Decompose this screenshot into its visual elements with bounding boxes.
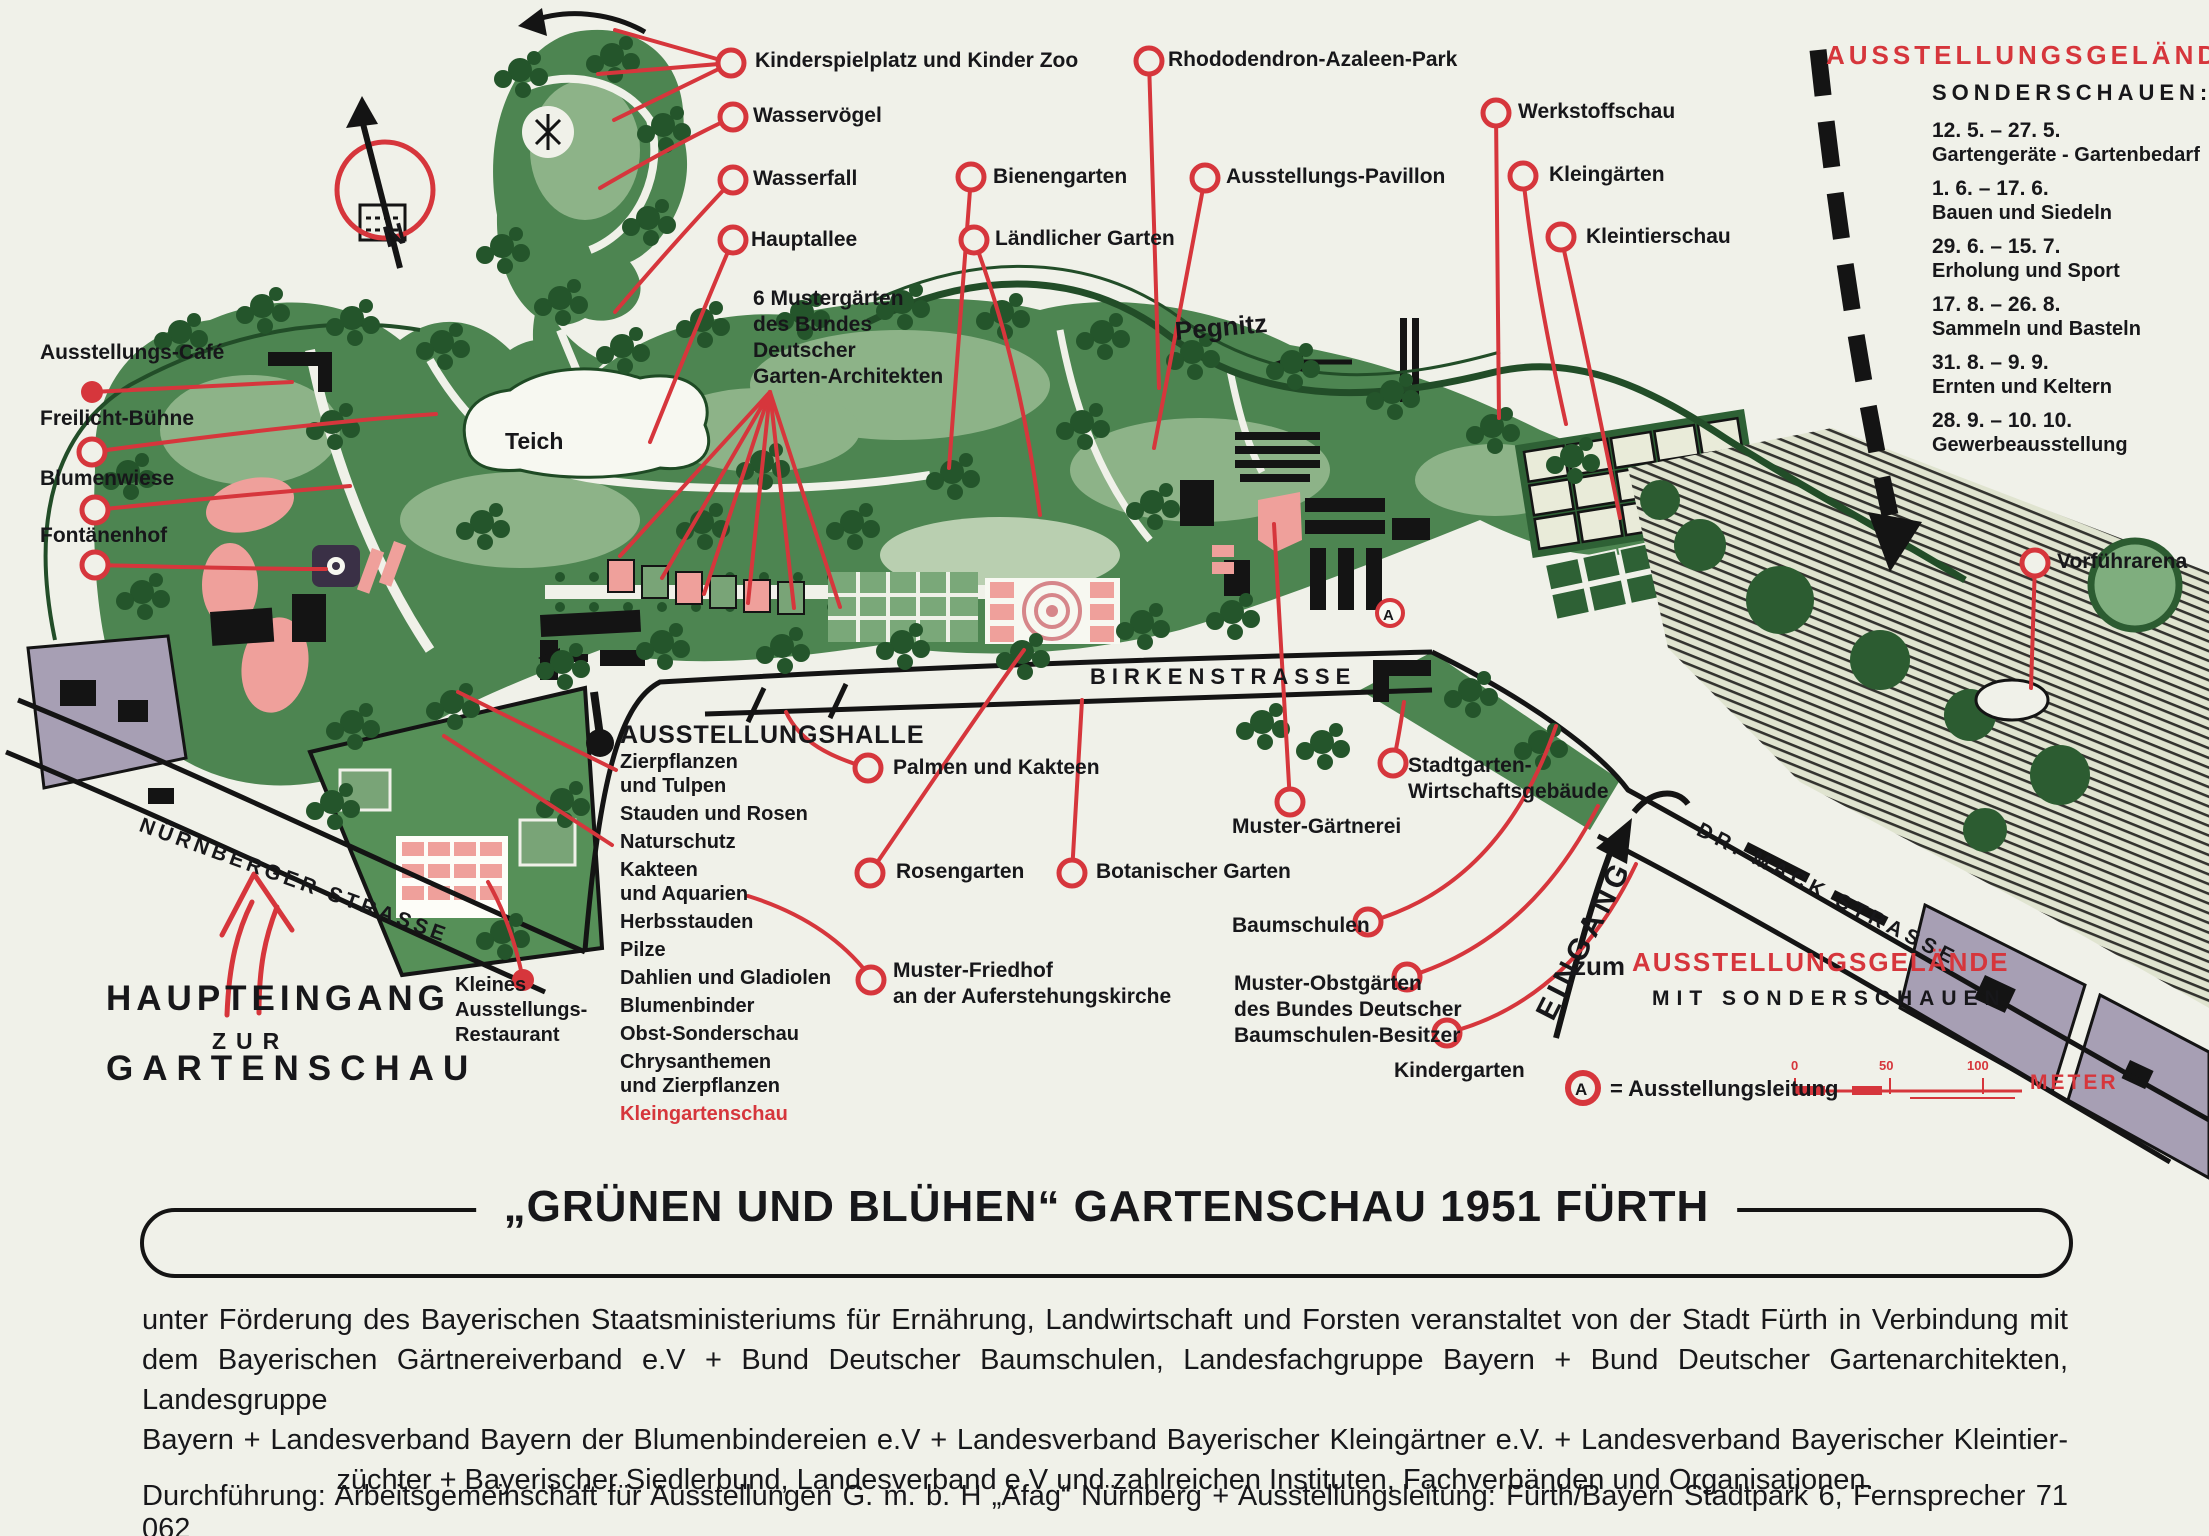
special-grounds-title: AUSSTELLUNGSGELÄNDE — [1826, 42, 2209, 68]
paragraph-line: dem Bayerischen Gärtnereiverband e.V + B… — [142, 1340, 2068, 1420]
label-fontaenenhof: Fontänenhof — [40, 523, 167, 549]
entrance-grounds-red: AUSSTELLUNGSGELÄNDE — [1632, 949, 2009, 975]
entrance-mit-sonderschauen: MIT SONDERSCHAUEN — [1652, 986, 2007, 1012]
show-entry: 17. 8. – 26. 8.Sammeln und Basteln — [1932, 292, 2209, 342]
label-wasserfall: Wasserfall — [753, 166, 857, 192]
label-muster-gaertnerei: Muster-Gärtnerei — [1232, 814, 1401, 840]
label-pegnitz-river: Pegnitz — [1174, 310, 1268, 344]
label-muster-friedhof: Muster-Friedhof an der Auferstehungskirc… — [893, 958, 1171, 1010]
hall-title: AUSSTELLUNGSHALLE — [620, 722, 925, 748]
hall-item: Pilze — [620, 938, 831, 962]
durchfuehrung-line: Durchführung: Arbeitsgemeinschaft für Au… — [142, 1480, 2068, 1536]
street-birkenstrasse: BIRKENSTRASSE — [1090, 664, 1356, 690]
label-palmen-kakteen: Palmen und Kakteen — [893, 755, 1100, 781]
hall-item-kleingartenschau: Kleingartenschau — [620, 1102, 831, 1126]
main-entrance-line1: HAUPTEINGANG — [106, 986, 450, 1012]
special-shows-heading: SONDERSCHAUEN: — [1932, 80, 2209, 106]
title-banner: „GRÜNEN UND BLÜHEN“ GARTENSCHAU 1951 FÜR… — [140, 1208, 2073, 1278]
label-wasservoegel: Wasservögel — [753, 103, 882, 129]
paragraph-line: unter Förderung des Bayerischen Staatsmi… — [142, 1300, 2068, 1340]
label-kleingaerten: Kleingärten — [1549, 162, 1665, 188]
label-rosengarten: Rosengarten — [896, 859, 1024, 885]
label-vorfuehrarena: Vorführarena — [2057, 549, 2187, 575]
label-muster-obstgaerten: Muster-Obstgärten des Bundes Deutscher B… — [1234, 971, 1462, 1049]
hall-item: Naturschutz — [620, 830, 831, 854]
show-entry: 29. 6. – 15. 7.Erholung und Sport — [1932, 234, 2209, 284]
hall-item: Blumenbinder — [620, 994, 831, 1018]
label-teich: Teich — [505, 428, 563, 454]
label-blumenwiese: Blumenwiese — [40, 466, 174, 492]
map-a-marker: A — [1383, 603, 1394, 629]
scale-meter-label: METER — [2030, 1070, 2119, 1096]
gartenschau-map-poster: AUSSTELLUNGSGELÄNDE SONDERSCHAUEN: 12. 5… — [0, 0, 2209, 1536]
show-entry: 1. 6. – 17. 6.Bauen und Siedeln — [1932, 176, 2209, 226]
hall-item: Kakteen und Aquarien — [620, 858, 831, 906]
label-kleines-restaurant: Kleines Ausstellungs- Restaurant — [455, 973, 587, 1048]
label-freilicht-buehne: Freilicht-Bühne — [40, 406, 194, 432]
poster-title: „GRÜNEN UND BLÜHEN“ GARTENSCHAU 1951 FÜR… — [476, 1182, 1738, 1232]
label-kleintierschau: Kleintierschau — [1586, 224, 1731, 250]
hall-item: Herbsstauden — [620, 910, 831, 934]
entrance-zum: zum — [1573, 953, 1625, 979]
hall-items: Zierpflanzen und Tulpen Stauden und Rose… — [620, 750, 831, 1130]
legend-a-marker: A — [1575, 1077, 1587, 1103]
main-entrance-line3: GARTENSCHAU — [106, 1056, 477, 1082]
organizer-paragraph: unter Förderung des Bayerischen Staatsmi… — [142, 1300, 2068, 1500]
legend-a-text: = Ausstellungsleitung — [1610, 1076, 1838, 1102]
label-kinderspielplatz: Kinderspielplatz und Kinder Zoo — [755, 48, 1078, 74]
show-entry: 31. 8. – 9. 9.Ernten und Keltern — [1932, 350, 2209, 400]
label-mustergaerten: 6 Mustergärten des Bundes Deutscher Gart… — [753, 286, 943, 390]
hall-item: Zierpflanzen und Tulpen — [620, 750, 831, 798]
paragraph-line: Bayern + Landesverband Bayern der Blumen… — [142, 1420, 2068, 1460]
label-bienengarten: Bienengarten — [993, 164, 1127, 190]
hall-item: Stauden und Rosen — [620, 802, 831, 826]
label-ausstellungs-cafe: Ausstellungs-Café — [40, 340, 224, 366]
hall-item: Obst-Sonderschau — [620, 1022, 831, 1046]
label-kindergarten: Kindergarten — [1394, 1058, 1525, 1084]
hall-item: Chrysanthemen und Zierpflanzen — [620, 1050, 831, 1098]
label-rhododendron-park: Rhododendron-Azaleen-Park — [1168, 47, 1457, 73]
scale-tick-100: 100 — [1967, 1058, 1989, 1073]
label-hauptallee: Hauptallee — [751, 227, 857, 253]
hall-item: Dahlien und Gladiolen — [620, 966, 831, 990]
label-ausstellungs-pavillon: Ausstellungs-Pavillon — [1226, 164, 1445, 190]
label-baumschulen: Baumschulen — [1232, 913, 1370, 939]
special-shows-list: SONDERSCHAUEN: 12. 5. – 27. 5.Gartengerä… — [1932, 80, 2209, 466]
label-stadtgarten-wirtschaftsgebaeude: Stadtgarten- Wirtschaftsgebäude — [1408, 753, 1609, 805]
scale-tick-0: 0 — [1791, 1058, 1798, 1073]
label-werkstoffschau: Werkstoffschau — [1518, 99, 1675, 125]
scale-tick-50: 50 — [1879, 1058, 1893, 1073]
show-entry: 28. 9. – 10. 10.Gewerbeausstellung — [1932, 408, 2209, 458]
label-laendlicher-garten: Ländlicher Garten — [995, 226, 1175, 252]
label-botanischer-garten: Botanischer Garten — [1096, 859, 1291, 885]
show-entry: 12. 5. – 27. 5.Gartengeräte - Gartenbeda… — [1932, 118, 2209, 168]
